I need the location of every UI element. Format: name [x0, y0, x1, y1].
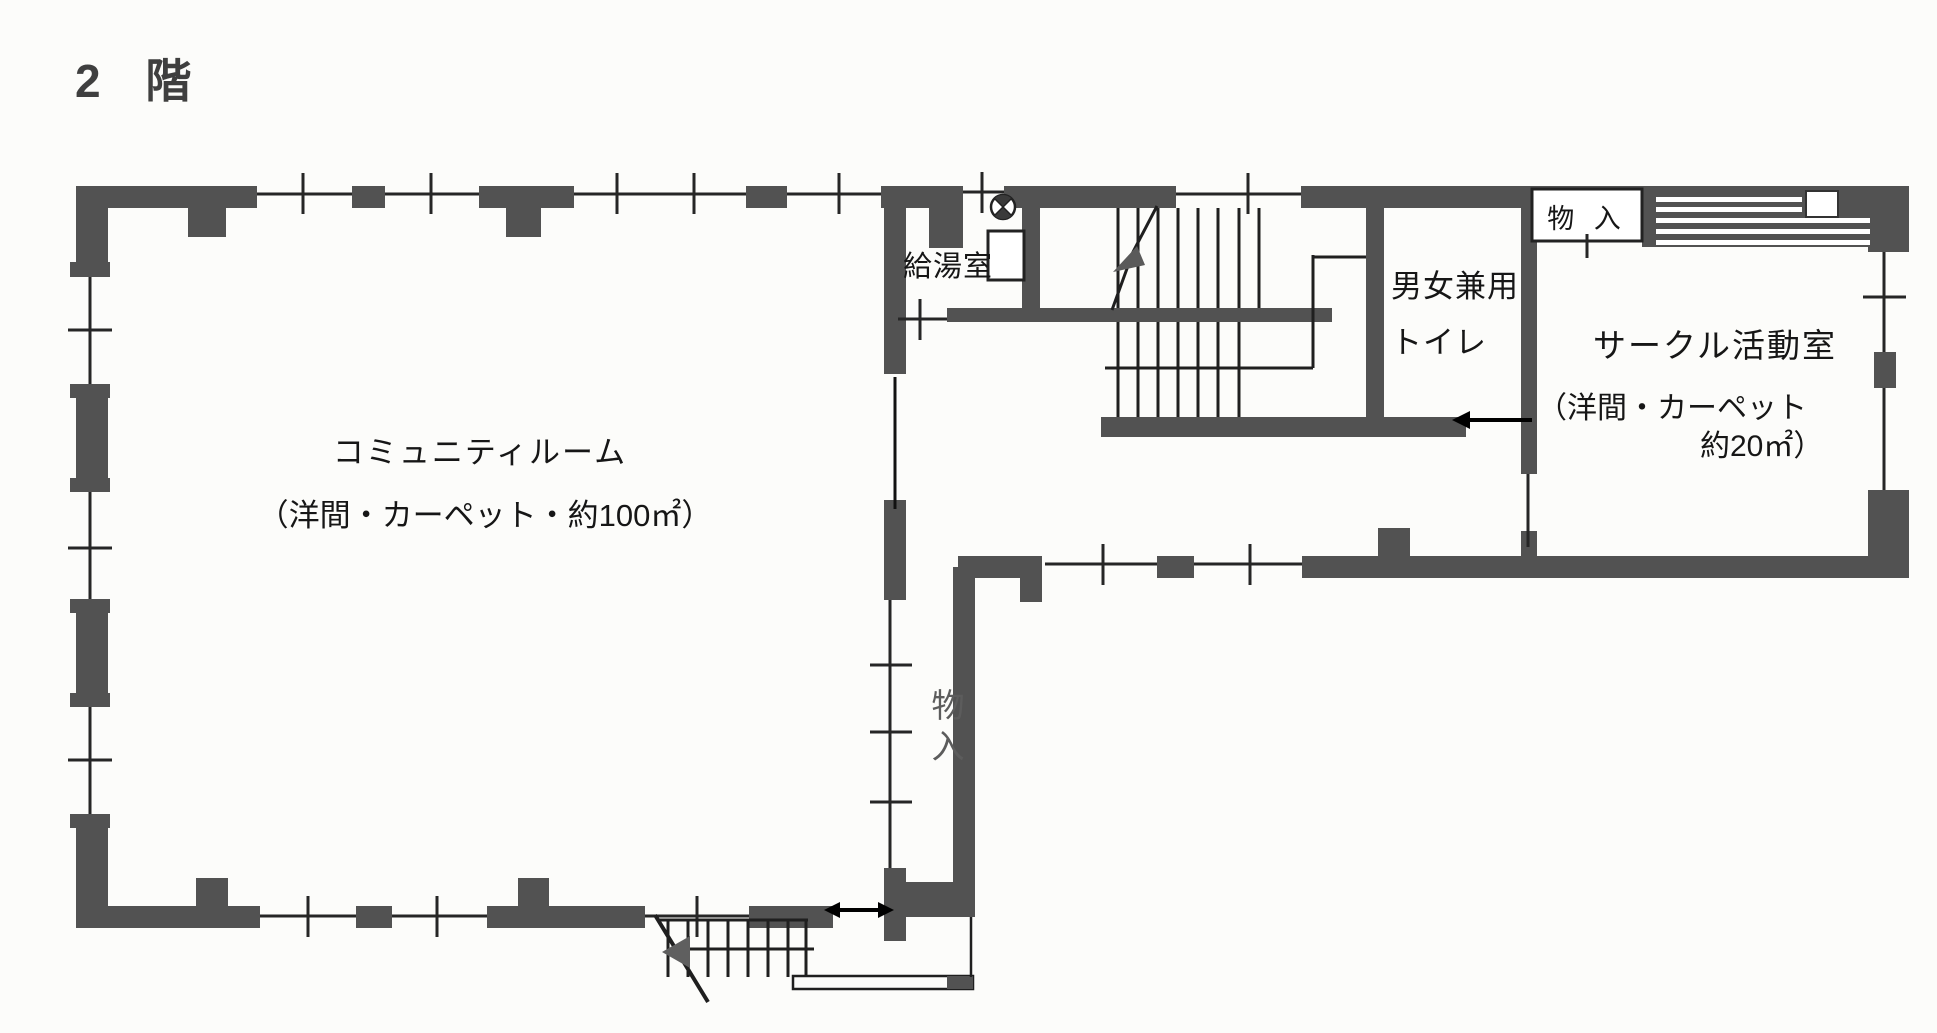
window-openings: [68, 172, 1906, 937]
circle-room-spec-line2: 約20㎡）: [1700, 421, 1823, 465]
exterior-stair-direction-arrow: [662, 936, 690, 968]
sink-counter: [988, 231, 1024, 280]
circle-room-name: サークル活動室: [1593, 319, 1837, 367]
circle-cross-icon: [991, 195, 1015, 219]
toilet-name-line2: トイレ: [1391, 317, 1487, 362]
entrance-double-arrow: [824, 902, 894, 918]
community-room-name: コミュニティルーム: [295, 427, 665, 472]
floor-plan-page: 2 階 コミュニティルーム （洋間・カーペット・約100㎡） 給湯室 男女兼用 …: [0, 0, 1937, 1033]
shelf-unit: [1656, 189, 1886, 247]
toilet-name-line1: 男女兼用: [1391, 261, 1519, 306]
community-room-spec: （洋間・カーペット・約100㎡）: [250, 490, 720, 535]
storage-top-label: 物 入: [1532, 197, 1642, 236]
floor-title: 2 階: [75, 45, 207, 111]
kitchenette-name: 給湯室: [903, 243, 993, 285]
storage-closet-mid-doors: [870, 600, 912, 868]
walls: [70, 186, 1909, 941]
storage-mid-label: 物入: [921, 688, 969, 770]
